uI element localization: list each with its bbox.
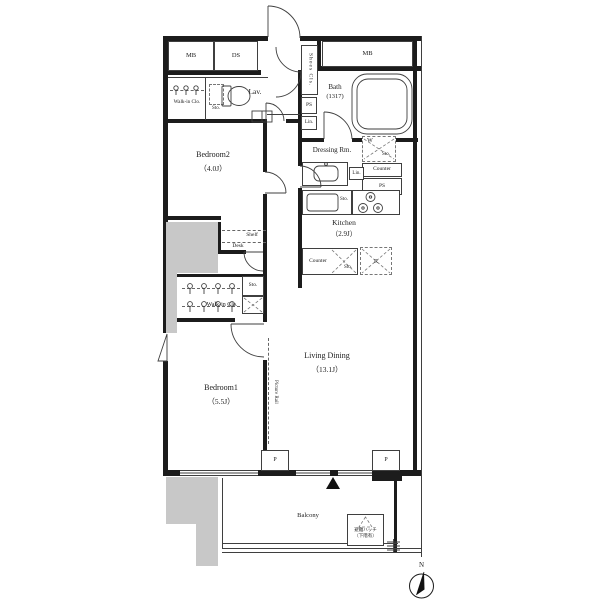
bedroom1-door-swing [231,324,264,357]
bedroom2-door-swing [265,172,286,193]
entrance-direction-marker [326,477,340,489]
vestibule-box-cross-lines [244,298,262,312]
stove-burners-icon [359,193,383,213]
floor-plan-page: { "rooms": { "bedroom2": {"name": "Bedro… [0,0,600,600]
dressing-sink-icon [314,163,338,181]
balcony-partition-icon [387,539,400,553]
washer-cross-lines [364,139,394,159]
vestibule-door-swing [244,252,263,271]
compass-icon [410,572,434,598]
refrigerator-cross-lines [362,249,390,273]
toilet-icon [222,86,250,106]
evacuation-hatch-triangle [359,517,372,527]
dressing-door-swing [300,166,321,187]
lavatory-door-swing [266,103,284,121]
shoes-closet-door-swings [276,47,301,97]
entrance-door-swing [268,6,300,38]
bath-door-swing [324,112,352,139]
washbasin-small-icon [252,111,272,122]
island-counter-cross-lines [332,250,356,273]
hanger-icons-upper-wic [174,86,198,95]
bathtub-icon [352,74,412,134]
hanger-icons-lower-wic [188,284,235,312]
kitchen-sink-icon [307,194,338,211]
left-window-icon [158,334,167,361]
fixtures-overlay [0,0,600,600]
